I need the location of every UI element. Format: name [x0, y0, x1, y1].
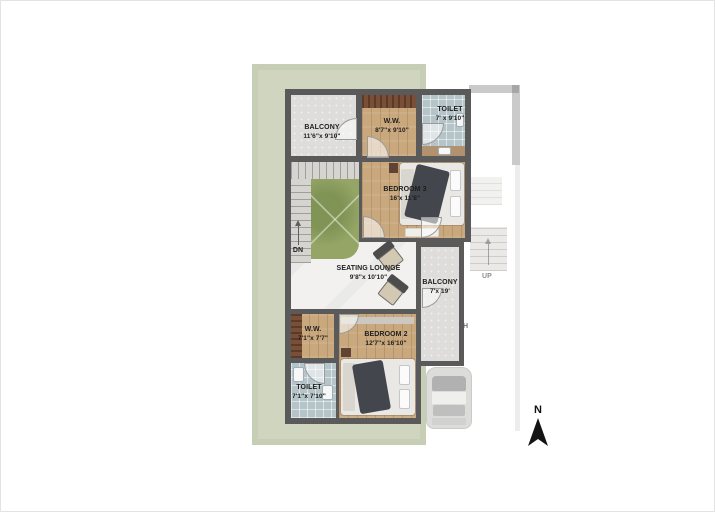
car-top-view — [426, 367, 472, 429]
label-bedroom-3: BEDROOM 3 16'x 11'8" — [361, 186, 449, 203]
room-name: BEDROOM 2 — [339, 331, 433, 340]
room-dims: 7'x 19' — [418, 288, 462, 297]
room-name: BEDROOM 3 — [361, 186, 449, 195]
north-compass: N — [525, 404, 551, 452]
wardrobe-unit — [362, 95, 416, 108]
stairs-up-arrow-icon — [488, 241, 489, 265]
bed-pillow — [450, 196, 461, 217]
bed-blanket — [352, 360, 391, 415]
bed-pillow — [399, 389, 410, 409]
ghost-stairs — [468, 177, 502, 205]
room-dims: 7'1"x 7'7" — [288, 335, 338, 344]
label-toilet-top: TOILET 7' x 9'10" — [423, 106, 477, 123]
room-dims: 16'x 11'8" — [361, 195, 449, 204]
ghost-wall — [515, 165, 520, 431]
room-name: BALCONY — [418, 279, 462, 288]
room-name: SEATING LOUNGE — [311, 265, 426, 274]
room-name: TOILET — [423, 106, 477, 115]
side-table — [389, 163, 398, 173]
room-name: TOILET — [285, 384, 333, 393]
car-trunk — [432, 418, 466, 425]
stairs-upper-flight — [291, 162, 359, 179]
north-arrow-icon — [525, 416, 551, 448]
room-name: W.W. — [362, 118, 422, 127]
stairs-down-arrow-icon — [298, 223, 299, 245]
room-dims: 12'7"x 16'10" — [339, 340, 433, 349]
label-balcony-right: BALCONY 7'x 19' — [418, 279, 462, 296]
bed-pillow — [450, 170, 461, 191]
room-dims: 11'6"x 9'10" — [286, 133, 358, 142]
label-toilet-bottom: TOILET 7'1"x 7'10" — [285, 384, 333, 401]
car-rear-window — [433, 405, 465, 416]
room-dims: 8'7"x 9'10" — [362, 127, 422, 136]
car-roof — [432, 392, 466, 404]
label-seating-lounge: SEATING LOUNGE 9'8"x 10'10" — [311, 265, 426, 282]
room-dims: 7'1"x 7'10" — [285, 393, 333, 402]
sink-fixture — [293, 367, 304, 382]
label-ww-bottom: W.W. 7'1"x 7'7" — [288, 326, 338, 343]
bed-bedroom-2 — [341, 359, 415, 415]
ghost-wall — [512, 85, 520, 165]
label-bedroom-2: BEDROOM 2 12'7"x 16'10" — [339, 331, 433, 348]
north-label: N — [525, 404, 551, 416]
label-ww-top: W.W. 8'7"x 9'10" — [362, 118, 422, 135]
room-name: BALCONY — [286, 124, 358, 133]
side-table — [341, 348, 351, 357]
room-dims: 9'8"x 10'10" — [311, 274, 426, 283]
label-stairs-down: DN — [288, 247, 308, 256]
label-balcony-top: BALCONY 11'6"x 9'10" — [286, 124, 358, 141]
floor-plan-canvas: UP CH — [0, 0, 715, 512]
car-windshield — [432, 376, 466, 391]
lawn-court — [311, 179, 359, 259]
sink-fixture — [438, 147, 451, 155]
room-dims: 7' x 9'10" — [423, 115, 477, 124]
room-name: W.W. — [288, 326, 338, 335]
bed-pillow — [399, 365, 410, 385]
stairs-up-label: UP — [471, 273, 503, 282]
